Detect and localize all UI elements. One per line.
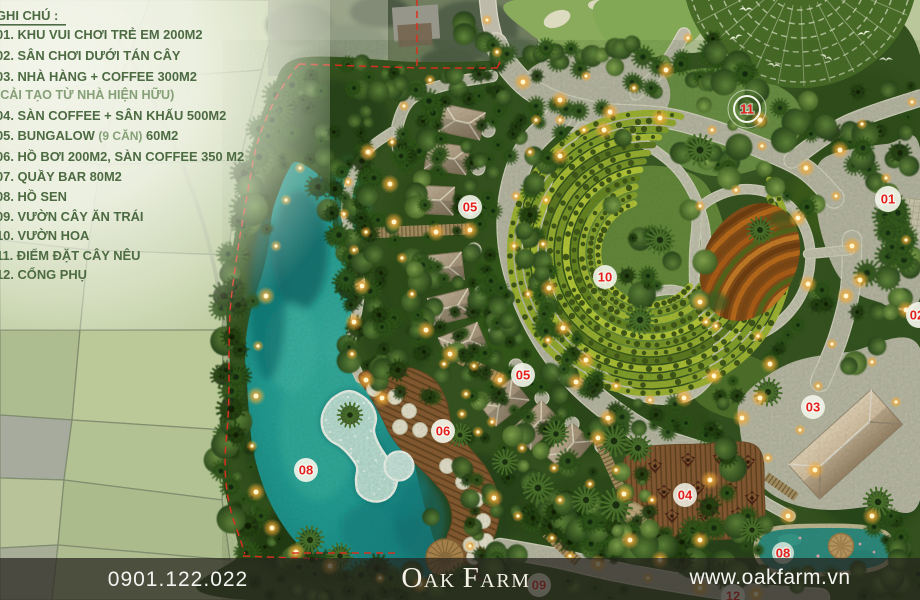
- svg-text:03: 03: [806, 400, 820, 415]
- svg-text:01: 01: [881, 192, 895, 207]
- svg-text:www.oakfarm.vn: www.oakfarm.vn: [688, 566, 850, 589]
- svg-text:09. VƯỜN CÂY ĂN TRÁI: 09. VƯỜN CÂY ĂN TRÁI: [0, 209, 144, 224]
- svg-text:03. NHÀ HÀNG + COFFEE 300M2: 03. NHÀ HÀNG + COFFEE 300M2: [0, 69, 197, 84]
- svg-text:05: 05: [516, 368, 530, 383]
- svg-text:11. ĐIỂM ĐẶT CÂY NÊU: 11. ĐIỂM ĐẶT CÂY NÊU: [0, 248, 140, 263]
- svg-text:10. VƯỜN HOA: 10. VƯỜN HOA: [0, 228, 89, 243]
- svg-text:06. HỒ BƠI 200M2, SÀN COFFEE 3: 06. HỒ BƠI 200M2, SÀN COFFEE 350 M2: [0, 149, 244, 164]
- svg-text:08. HỒ SEN: 08. HỒ SEN: [0, 189, 67, 204]
- svg-text:11: 11: [740, 102, 754, 117]
- svg-text:10: 10: [598, 270, 612, 285]
- svg-text:07. QUẦY BAR 80M2: 07. QUẦY BAR 80M2: [0, 169, 122, 184]
- svg-text:08: 08: [299, 463, 313, 478]
- svg-text:04. SÀN COFFEE + SÂN KHẤU 500M: 04. SÀN COFFEE + SÂN KHẤU 500M2: [0, 108, 226, 123]
- svg-text:05. BUNGALOW (9 CĂN) 60M2: 05. BUNGALOW (9 CĂN) 60M2: [0, 128, 178, 143]
- svg-text:0901.122.022: 0901.122.022: [108, 568, 248, 591]
- svg-text:01. KHU VUI CHƠI TRẺ EM 200M2: 01. KHU VUI CHƠI TRẺ EM 200M2: [0, 27, 203, 42]
- svg-text:02: 02: [910, 308, 920, 323]
- svg-text:02. SÂN CHƠI DƯỚI TÁN CÂY: 02. SÂN CHƠI DƯỚI TÁN CÂY: [0, 48, 181, 63]
- svg-text:06: 06: [436, 424, 450, 439]
- svg-text:05: 05: [463, 200, 477, 215]
- svg-text:GHI CHÚ :: GHI CHÚ :: [0, 8, 58, 23]
- svg-text:(CẢI TẠO TỪ NHÀ HIỆN HỮU): (CẢI TẠO TỪ NHÀ HIỆN HỮU): [0, 87, 174, 102]
- svg-text:12. CỔNG PHỤ: 12. CỔNG PHỤ: [0, 267, 87, 282]
- svg-text:04: 04: [678, 488, 693, 503]
